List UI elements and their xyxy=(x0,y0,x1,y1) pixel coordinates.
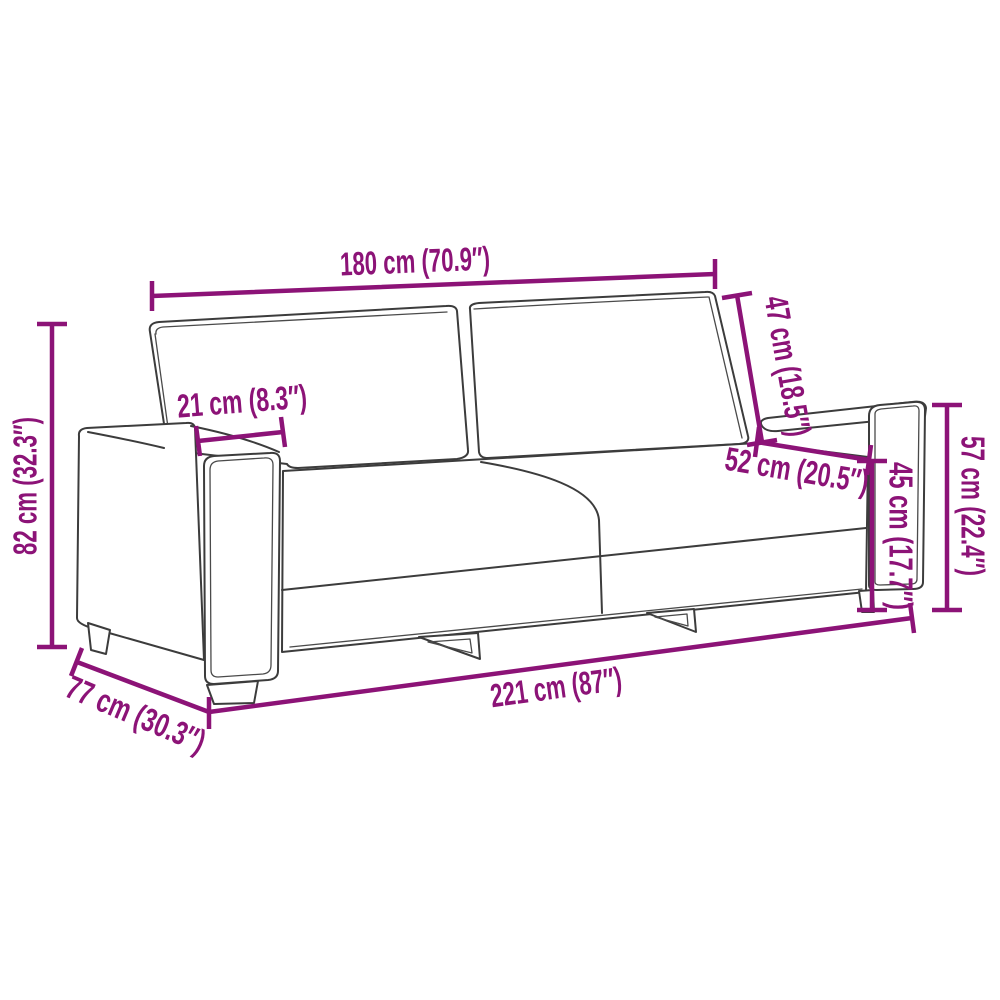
dim-depth: 77 cm (30.3″) xyxy=(61,648,212,760)
dim-total-height: 82 cm (32.3″) xyxy=(7,324,68,647)
dim-label-armrest-height: 57 cm (22.4″) xyxy=(955,436,992,576)
dim-label-top-width: 180 cm (70.9″) xyxy=(339,240,490,283)
left-armrest-outer-face xyxy=(77,423,204,660)
dim-label-total-height: 82 cm (32.3″) xyxy=(7,417,44,555)
left-armrest-front-leg xyxy=(207,681,258,704)
metal-bracket-right xyxy=(647,609,696,632)
dim-label-backrest-slant: 47 cm (18.5″) xyxy=(757,293,818,439)
dim-armrest-height: 57 cm (22.4″) xyxy=(932,405,992,610)
dim-label-seat-height: 45 cm (17.7″) xyxy=(883,462,920,610)
sofa-dimension-drawing: 180 cm (70.9″) 47 cm (18.5″) 21 cm (8.3″… xyxy=(0,0,1000,1000)
back-cushion-right xyxy=(470,292,748,458)
dim-label-total-width: 221 cm (87″) xyxy=(488,660,624,715)
dim-label-depth: 77 cm (30.3″) xyxy=(61,668,212,760)
left-armrest-front-panel xyxy=(204,453,280,684)
dimension-diagram: 180 cm (70.9″) 47 cm (18.5″) 21 cm (8.3″… xyxy=(0,0,1000,1000)
